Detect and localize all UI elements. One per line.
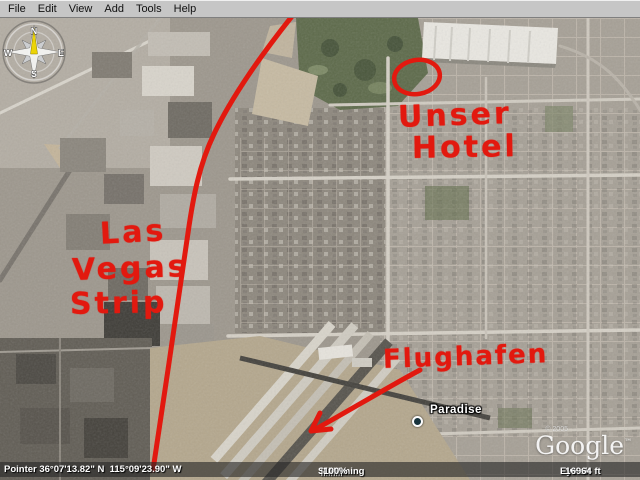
annotation-las: Las bbox=[99, 213, 167, 251]
status-bar: Pointer 36°07'13.82" N 115°09'23.90" W S… bbox=[0, 462, 640, 477]
satellite-imagery bbox=[0, 18, 640, 480]
menu-add[interactable]: Add bbox=[99, 2, 129, 16]
google-watermark: © 2005 Google™ bbox=[535, 426, 632, 460]
google-logo: Google™ bbox=[535, 431, 632, 460]
eye-altitude-value: 16964 ft bbox=[565, 466, 600, 477]
annotation-flughafen: Flughafen bbox=[383, 339, 549, 375]
menu-bar: File Edit View Add Tools Help bbox=[0, 0, 640, 18]
compass-west-label: W bbox=[4, 48, 13, 58]
menu-help[interactable]: Help bbox=[169, 2, 202, 16]
trademark-symbol: ™ bbox=[624, 438, 632, 447]
menu-file[interactable]: File bbox=[3, 2, 31, 16]
google-earth-window: File Edit View Add Tools Help bbox=[0, 0, 640, 480]
streaming-status: Streaming ||||||||| 100% bbox=[318, 464, 323, 475]
paradise-place-label: Paradise bbox=[430, 404, 482, 416]
streaming-percent: 100% bbox=[323, 466, 347, 477]
eye-altitude: Eye alt 16964 ft bbox=[560, 464, 565, 475]
compass-rose: N E S W bbox=[0, 18, 68, 86]
menu-view[interactable]: View bbox=[64, 2, 98, 16]
paradise-placemark-icon[interactable] bbox=[412, 416, 423, 427]
pointer-coordinates: Pointer 36°07'13.82" N 115°09'23.90" W bbox=[4, 464, 181, 475]
compass-east-label: E bbox=[58, 48, 64, 58]
compass-north-label: N bbox=[31, 26, 38, 36]
menu-edit[interactable]: Edit bbox=[33, 2, 62, 16]
compass-south-label: S bbox=[31, 69, 37, 79]
annotation-vegas: Vegas bbox=[71, 249, 189, 288]
satellite-map-viewport[interactable]: Unser Hotel Las Vegas Strip Flughafen Pa… bbox=[0, 18, 640, 480]
menu-tools[interactable]: Tools bbox=[131, 2, 167, 16]
annotation-strip: Strip bbox=[70, 285, 168, 322]
annotation-hotel: Hotel bbox=[412, 129, 518, 166]
